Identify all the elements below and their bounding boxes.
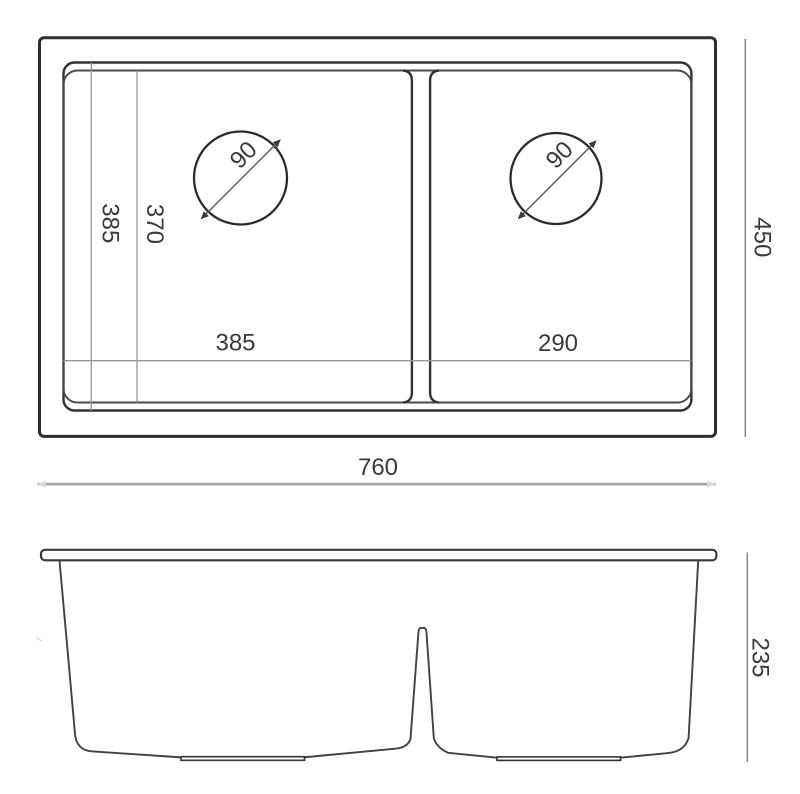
svg-text:385: 385 [97,203,124,243]
svg-text:235: 235 [747,637,774,677]
svg-text:290: 290 [538,330,578,357]
svg-text:370: 370 [141,204,168,244]
svg-text:760: 760 [358,454,398,481]
svg-text:385: 385 [215,329,255,356]
svg-text:450: 450 [749,217,776,257]
